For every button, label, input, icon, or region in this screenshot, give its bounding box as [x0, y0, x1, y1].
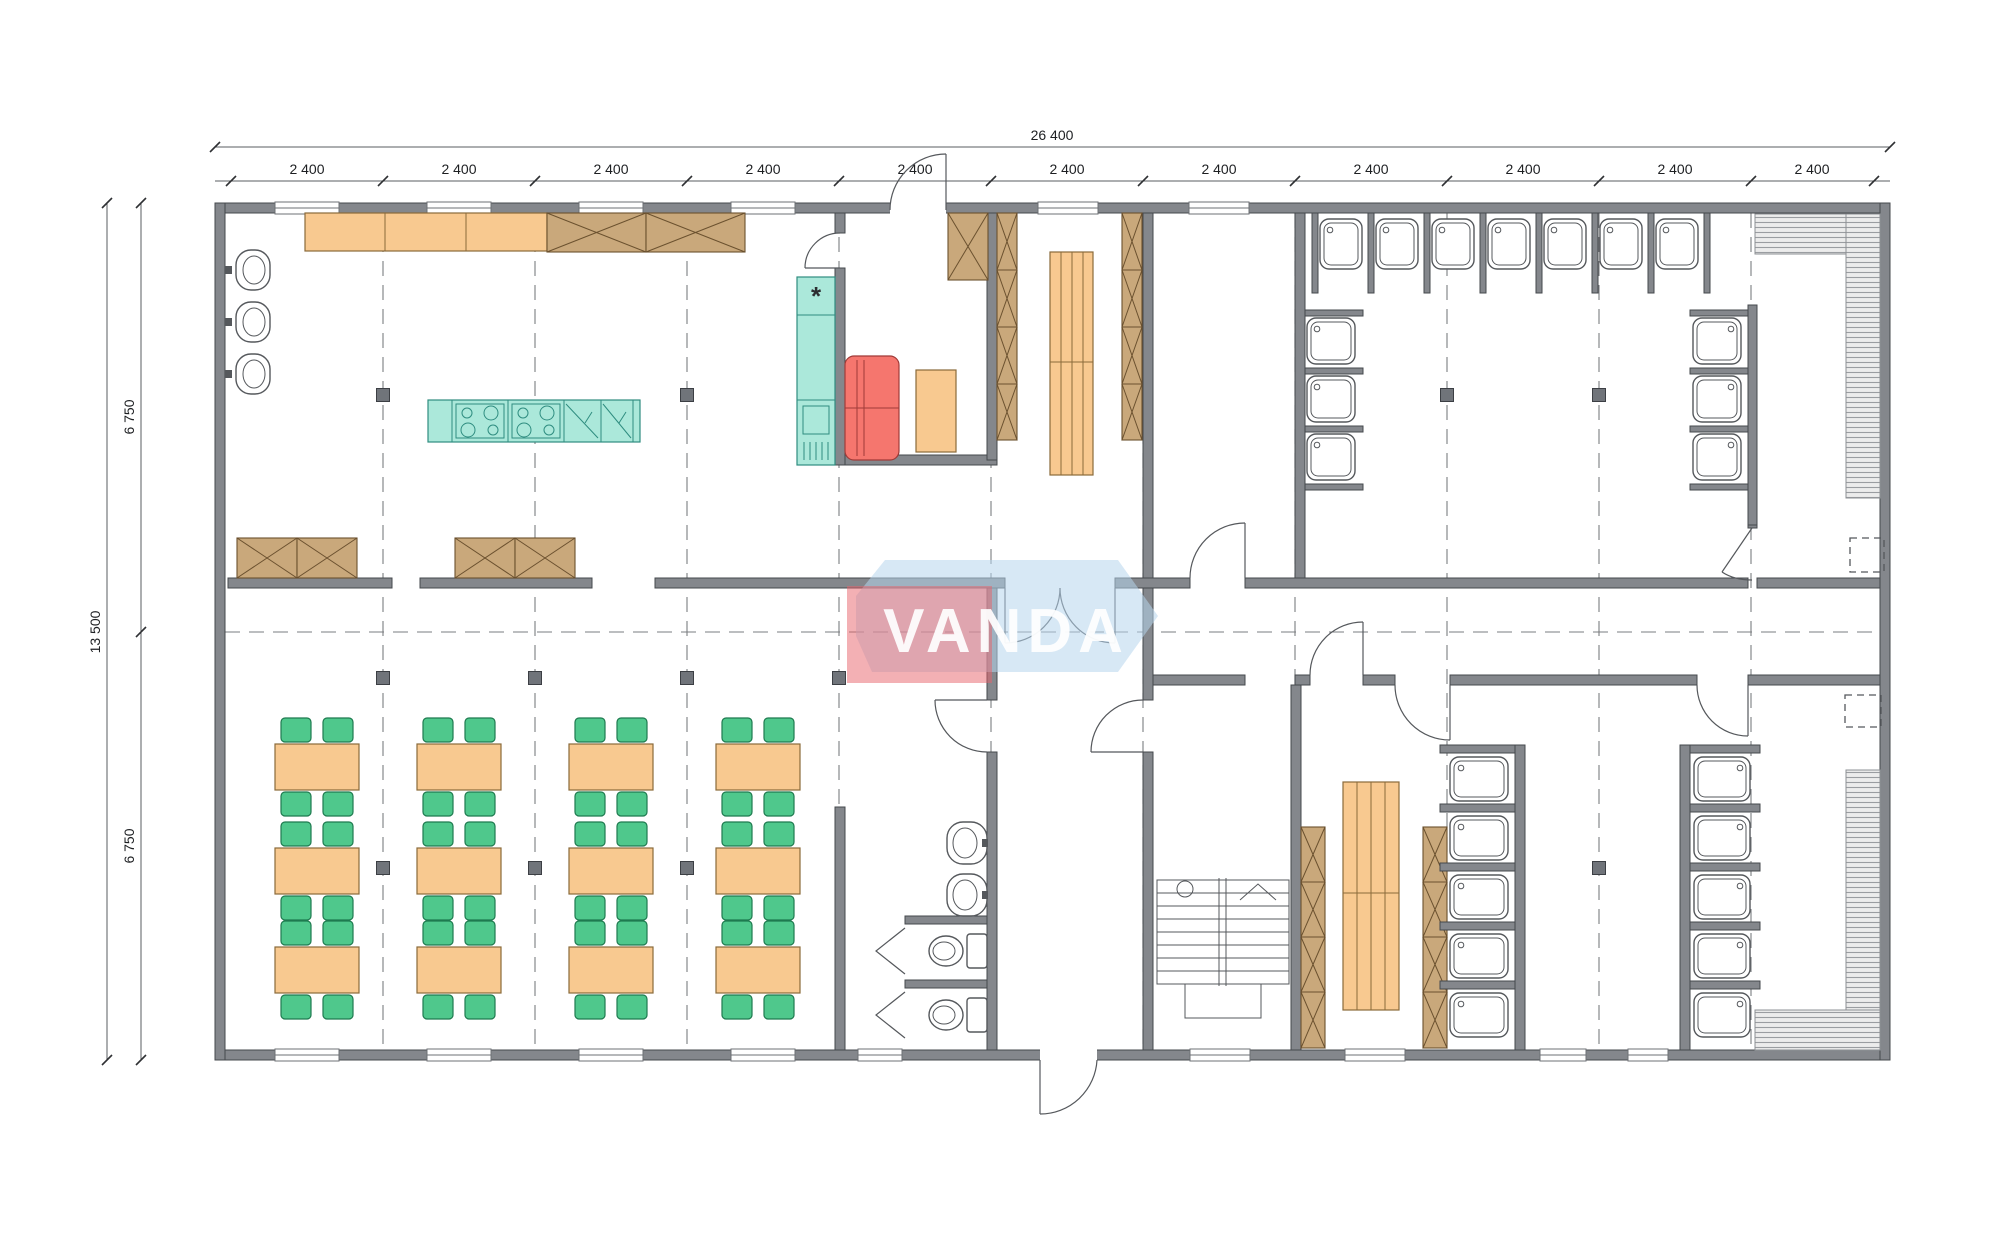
freezer-symbol: *	[811, 281, 822, 311]
shower-stall	[1694, 993, 1750, 1037]
dim-label-half-height: 6 750	[121, 828, 137, 863]
wash-basin	[947, 822, 988, 864]
watermark-text: VANDA	[883, 597, 1129, 666]
shower-stall	[1307, 318, 1355, 364]
shower-stall	[1694, 875, 1750, 919]
door	[805, 233, 840, 268]
dining-set	[569, 718, 653, 816]
window	[1038, 202, 1098, 214]
dim-label-bay: 2 400	[289, 161, 324, 177]
window	[858, 1049, 902, 1061]
shower-stall	[1694, 934, 1750, 978]
locker-column	[1301, 827, 1325, 1048]
utility-room	[1690, 695, 1881, 1050]
wc-stall-door	[876, 992, 905, 1038]
shower-stall	[1656, 219, 1698, 269]
shower-stall	[1307, 376, 1355, 422]
dim-label-bay: 2 400	[1794, 161, 1829, 177]
floor-plan-page: 26 400 2 400 2 400 2 400 2 400 2 400 2 4…	[0, 0, 2000, 1235]
locker-cabinet	[948, 213, 988, 280]
window	[1190, 1049, 1250, 1061]
window	[1189, 202, 1249, 214]
locker-column	[997, 213, 1017, 440]
shower-stall	[1600, 219, 1642, 269]
door	[1190, 523, 1245, 578]
dimension-top-segments: 2 400 2 400 2 400 2 400 2 400 2 400 2 40…	[215, 161, 1890, 186]
shower-stall	[1693, 376, 1741, 422]
door	[1310, 622, 1363, 675]
dining-set	[417, 921, 501, 1019]
dining-set	[716, 718, 800, 816]
refrigerator: *	[797, 277, 835, 465]
tiered-bench	[1050, 252, 1093, 475]
equipment-placeholder	[1850, 538, 1884, 572]
hatched-ramp	[1755, 770, 1880, 1050]
shower-stall	[1450, 757, 1508, 801]
dim-label-bay: 2 400	[1201, 161, 1236, 177]
door	[1395, 685, 1450, 740]
storage-cabinet	[455, 538, 515, 578]
floor-plan-drawing: 26 400 2 400 2 400 2 400 2 400 2 400 2 4…	[0, 0, 2000, 1235]
dining-set	[569, 921, 653, 1019]
locker-column	[1423, 827, 1447, 1048]
window	[275, 1049, 339, 1061]
dim-label-bay: 2 400	[593, 161, 628, 177]
shower-stall	[1544, 219, 1586, 269]
window	[579, 1049, 643, 1061]
door	[1722, 528, 1752, 580]
window	[1628, 1049, 1668, 1061]
shower-stall	[1376, 219, 1418, 269]
dim-label-half-height: 6 750	[121, 399, 137, 434]
dining-set	[716, 921, 800, 1019]
wc-room	[929, 822, 988, 1032]
dining-set	[569, 822, 653, 920]
kitchen-island	[428, 400, 640, 442]
shower-stall	[1450, 816, 1508, 860]
storage-cabinet	[515, 538, 575, 578]
dim-label-total-height: 13 500	[87, 610, 103, 653]
wall-sink	[225, 302, 270, 342]
dining-set	[275, 822, 359, 920]
dimension-top-total: 26 400	[210, 127, 1895, 152]
kitchen-wall-cabinet	[646, 213, 745, 252]
staircase	[1157, 878, 1289, 1018]
dining-set	[417, 718, 501, 816]
shower-stall	[1450, 875, 1508, 919]
hatched-ramp	[1755, 214, 1880, 498]
shower-stall	[1432, 219, 1474, 269]
dim-label-bay: 2 400	[1049, 161, 1084, 177]
bench-room	[997, 213, 1142, 475]
kitchen-wall-cabinet	[547, 213, 646, 252]
brand-watermark: VANDA	[847, 560, 1158, 683]
kitchen-area: *	[225, 213, 835, 578]
dining-set	[716, 822, 800, 920]
lounge-room	[845, 213, 988, 460]
window	[427, 1049, 491, 1061]
wash-basin	[947, 874, 988, 916]
dim-label-bay: 2 400	[1657, 161, 1692, 177]
storage-cabinet	[297, 538, 357, 578]
shower-stall	[1693, 434, 1741, 480]
dim-label-bay: 2 400	[1505, 161, 1540, 177]
tiered-bench	[1343, 782, 1399, 1010]
sofa	[845, 356, 899, 460]
dining-set	[417, 822, 501, 920]
toilet	[929, 934, 987, 968]
window	[1540, 1049, 1586, 1061]
window	[1345, 1049, 1405, 1061]
shower-stall	[1693, 318, 1741, 364]
door	[935, 700, 987, 752]
dining-set	[275, 718, 359, 816]
dim-label-total-width: 26 400	[1031, 127, 1074, 143]
shower-stall	[1307, 434, 1355, 480]
wc-stall-door	[876, 928, 905, 974]
door	[1091, 700, 1143, 752]
shower-stall	[1320, 219, 1362, 269]
entrance-door	[1040, 1049, 1097, 1114]
shower-stall	[1488, 219, 1530, 269]
window	[427, 202, 491, 214]
dim-label-bay: 2 400	[441, 161, 476, 177]
changing-room	[1301, 745, 1515, 1048]
storage-cabinet	[237, 538, 297, 578]
wall-sink	[225, 354, 270, 394]
dim-label-bay: 2 400	[745, 161, 780, 177]
dim-label-bay: 2 400	[1353, 161, 1388, 177]
side-table	[916, 370, 956, 452]
dimension-left-total: 13 500	[87, 198, 112, 1065]
shower-stall	[1450, 993, 1508, 1037]
toilet	[929, 998, 987, 1032]
wall-sink	[225, 250, 270, 290]
stair-direction-arrow	[1240, 884, 1276, 900]
window	[731, 1049, 795, 1061]
shower-stall	[1450, 934, 1508, 978]
window	[275, 202, 339, 214]
kitchen-counter	[305, 213, 547, 251]
window	[731, 202, 795, 214]
locker-column	[1122, 213, 1142, 440]
stair-landing	[1185, 984, 1261, 1018]
dimension-left-segments: 6 750 6 750	[121, 198, 146, 1065]
door	[1697, 685, 1748, 736]
dining-set	[275, 921, 359, 1019]
shower-stall	[1694, 757, 1750, 801]
shower-stall	[1694, 816, 1750, 860]
equipment-placeholder	[1845, 695, 1881, 727]
window	[579, 202, 643, 214]
